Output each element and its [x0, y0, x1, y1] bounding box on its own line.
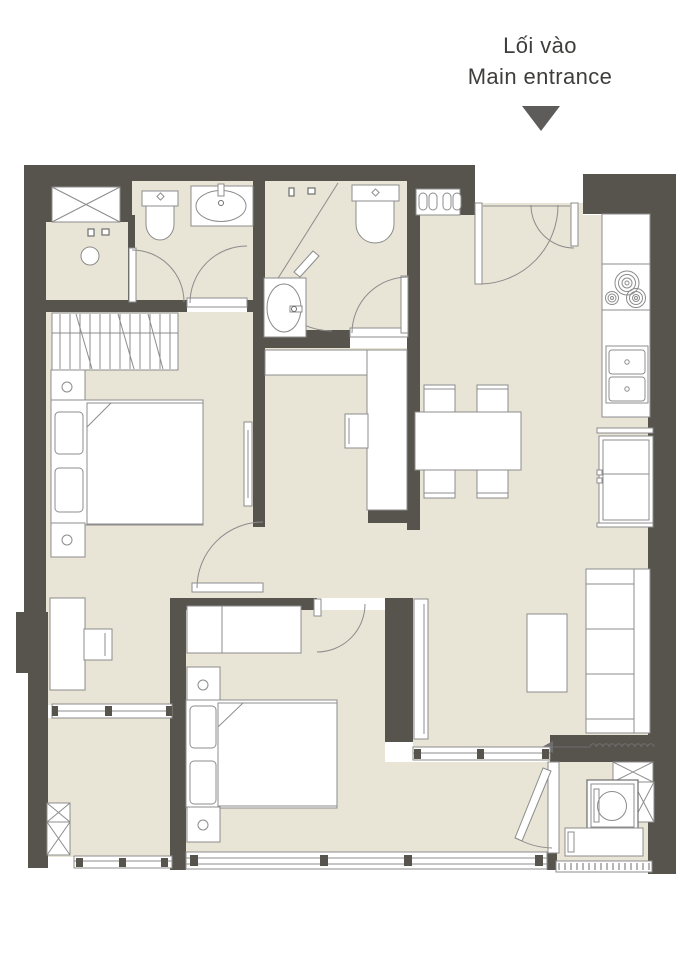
sink-2 — [264, 278, 306, 337]
mattress — [218, 703, 337, 806]
pillow — [55, 412, 83, 454]
dining-chair — [477, 385, 508, 413]
nightstand — [51, 523, 85, 557]
mattress — [87, 403, 203, 524]
railing — [556, 861, 652, 872]
shower-drain — [81, 247, 99, 265]
floor-region — [407, 530, 420, 598]
shower-door-leaf — [129, 248, 136, 302]
kitchen-sink — [606, 346, 648, 403]
dining-chair — [477, 470, 508, 498]
kitchen — [597, 214, 653, 527]
shoe-icon — [429, 193, 437, 210]
wall-segment — [385, 598, 413, 742]
utility-cabinet — [47, 803, 70, 855]
bathroom1-door — [187, 298, 247, 307]
wardrobe-second — [187, 606, 301, 653]
floor-region — [385, 762, 413, 853]
tv-panel — [244, 422, 252, 506]
wall-segment — [24, 165, 473, 181]
door-leaf — [475, 203, 482, 284]
floor-plan-canvas: Lối vào Main entrance — [0, 0, 693, 969]
shower-fixture — [102, 229, 109, 235]
railing — [74, 856, 172, 868]
sink-1 — [191, 184, 253, 226]
pillow — [190, 761, 216, 804]
dining-chair — [424, 470, 455, 498]
wall-segment — [24, 165, 46, 617]
cooktop — [602, 264, 650, 310]
wall-segment — [46, 300, 187, 312]
window-living — [413, 747, 550, 760]
study-desk — [367, 350, 407, 510]
wall-segment — [550, 735, 676, 762]
bedroom2-door-leaf — [314, 599, 321, 616]
door-leaf — [571, 203, 578, 246]
wall-segment — [583, 174, 676, 214]
nightstand — [187, 807, 220, 842]
shoe-icon — [443, 193, 451, 210]
counter-edge — [597, 428, 653, 433]
sofa — [586, 569, 650, 733]
shower-fixture — [289, 188, 294, 196]
washing-machine — [587, 780, 638, 831]
wall-segment — [407, 165, 420, 530]
nightstand — [51, 370, 85, 404]
window-bedroom2 — [186, 852, 547, 869]
counter-edge — [597, 523, 653, 527]
wall-segment — [16, 612, 30, 673]
bathroom2-door-leaf — [401, 276, 408, 333]
wall-segment — [28, 612, 48, 868]
shower-fixture — [88, 229, 94, 236]
floor-region — [413, 735, 550, 748]
bed-master — [51, 400, 203, 525]
shoe-icon — [419, 193, 427, 210]
shoe-icon — [453, 193, 461, 210]
coffee-table — [527, 614, 567, 692]
tv-console — [414, 599, 428, 739]
wardrobe-master — [52, 313, 178, 370]
bed-second — [186, 700, 337, 808]
pillow — [55, 468, 83, 512]
wall-segment — [170, 598, 186, 870]
fridge — [597, 436, 653, 524]
door-frame — [548, 762, 559, 853]
shower-fixture — [308, 188, 315, 194]
study-desk — [265, 350, 368, 375]
floor-region — [473, 203, 583, 215]
laundry-closet — [52, 187, 120, 222]
dining-chair — [424, 385, 455, 413]
shoe-rack — [416, 189, 461, 215]
nightstand — [187, 667, 220, 702]
bathroom2-door — [350, 328, 408, 337]
study-chair — [345, 414, 368, 448]
floor-plan — [0, 0, 693, 969]
pillow — [190, 706, 216, 748]
master-door — [192, 583, 263, 592]
balcony-shelf — [565, 828, 643, 856]
window-master — [52, 704, 172, 718]
dining-table — [415, 412, 521, 470]
